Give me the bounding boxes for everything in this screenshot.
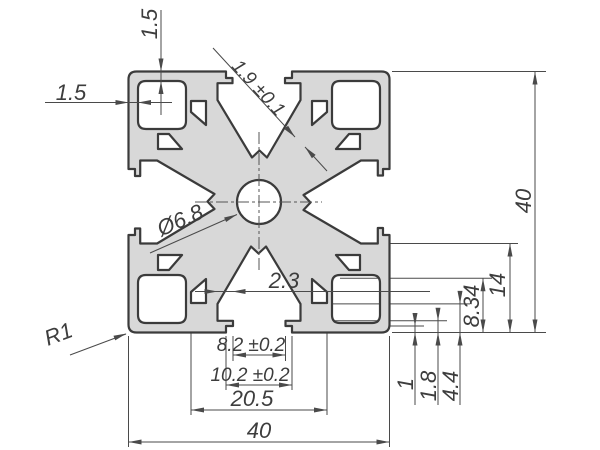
- dim-slot-wall-thickness: 2.3: [268, 268, 300, 293]
- dim-slot-mouth-width: 10.2 ±0.2: [210, 365, 290, 386]
- dim-height-4-4: 4.4: [438, 371, 463, 402]
- technical-drawing-canvas: 40 40 20.5 10.2 ±0.2 8.2 ±0.2 2.3 14 8.3…: [0, 0, 600, 450]
- dim-wall-left-thickness: 1.5: [56, 80, 87, 105]
- dim-height-14: 14: [485, 273, 510, 297]
- dim-overall-height-right: 40: [511, 188, 536, 213]
- dim-corner-radius: R1: [41, 317, 76, 350]
- dim-web-thickness: 1.9 ±0.1: [227, 56, 289, 121]
- dim-height-1-8: 1.8: [416, 370, 441, 401]
- dim-height-1: 1: [393, 378, 418, 390]
- dim-overall-width-bottom: 40: [247, 418, 272, 443]
- dim-slot-opening-width: 8.2 ±0.2: [217, 335, 286, 356]
- dim-slot-cavity-width: 20.5: [230, 386, 275, 411]
- dim-wall-top-thickness: 1.5: [137, 8, 162, 39]
- dim-height-8-34: 8.34: [459, 285, 484, 328]
